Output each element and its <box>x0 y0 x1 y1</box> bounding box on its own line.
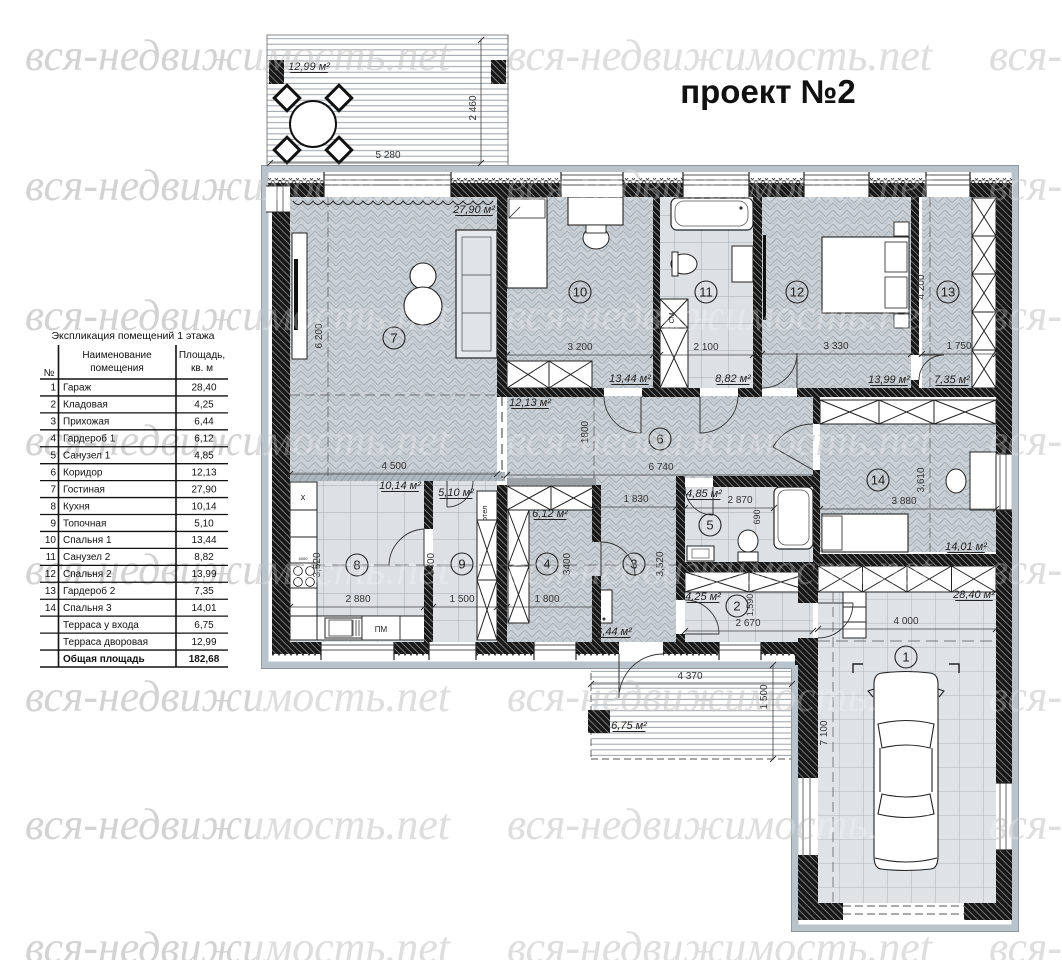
svg-text:Гардероб 2: Гардероб 2 <box>63 585 116 597</box>
svg-text:вся-недвижимость.net: вся-недвижимость.net <box>507 416 934 465</box>
svg-text:вся-недвижимость.net: вся-недвижимость.net <box>507 545 934 594</box>
svg-text:вся-недвижимость.net: вся-недвижимость.net <box>989 416 1062 465</box>
svg-text:вся-недвижимость.net: вся-недвижимость.net <box>989 800 1062 849</box>
svg-text:Площадь,: Площадь, <box>179 350 225 361</box>
svg-text:5,10 м²: 5,10 м² <box>438 487 474 499</box>
svg-text:8,82: 8,82 <box>194 552 214 563</box>
svg-text:вся-недвижимость.net: вся-недвижимость.net <box>507 800 934 849</box>
svg-text:3 880: 3 880 <box>891 496 916 507</box>
svg-text:6,75: 6,75 <box>194 620 214 631</box>
svg-text:вся-недвижимость.net: вся-недвижимость.net <box>989 672 1062 721</box>
svg-text:вся-недвижимость.net: вся-недвижимость.net <box>989 923 1062 960</box>
svg-text:Общая площадь: Общая площадь <box>63 653 145 665</box>
svg-text:14,01: 14,01 <box>191 603 216 614</box>
svg-text:5 280: 5 280 <box>375 150 400 161</box>
svg-text:x: x <box>301 492 306 502</box>
svg-text:12,13: 12,13 <box>191 467 216 478</box>
svg-text:7 100: 7 100 <box>819 720 830 745</box>
svg-text:8,82 м²: 8,82 м² <box>715 373 751 385</box>
svg-text:6: 6 <box>50 467 56 478</box>
svg-text:9: 9 <box>50 518 56 529</box>
svg-text:2 870: 2 870 <box>727 495 752 506</box>
svg-text:13: 13 <box>941 285 955 300</box>
svg-text:6,75 м²: 6,75 м² <box>611 720 647 732</box>
svg-text:№: № <box>44 368 55 379</box>
svg-text:13,99 м²: 13,99 м² <box>868 374 910 386</box>
svg-text:Экспликация помещений 1 этажа: Экспликация помещений 1 этажа <box>51 330 214 342</box>
svg-text:27,90 м²: 27,90 м² <box>452 204 495 216</box>
svg-text:кв. м: кв. м <box>191 363 213 374</box>
svg-text:вся-недвижимость.net: вся-недвижимость.net <box>989 31 1062 80</box>
svg-text:2 670: 2 670 <box>735 618 760 629</box>
svg-text:5,10: 5,10 <box>194 518 214 529</box>
svg-text:вся-недвижимость.net: вся-недвижимость.net <box>507 291 934 340</box>
svg-text:помещения: помещения <box>90 363 144 374</box>
svg-text:1 750: 1 750 <box>946 341 971 352</box>
svg-text:4 000: 4 000 <box>893 616 918 627</box>
svg-text:1 830: 1 830 <box>623 494 648 505</box>
svg-text:1 800: 1 800 <box>534 594 559 605</box>
svg-text:ПМ: ПМ <box>375 625 388 634</box>
svg-text:12,99: 12,99 <box>191 637 216 648</box>
svg-text:4,85: 4,85 <box>194 451 214 462</box>
svg-text:2: 2 <box>50 400 56 411</box>
svg-text:вся-недвижимость.net: вся-недвижимость.net <box>989 161 1062 210</box>
svg-text:Кладовая: Кладовая <box>63 400 108 411</box>
svg-text:1: 1 <box>50 383 56 394</box>
svg-text:вся-недвижимость.net: вся-недвижимость.net <box>507 672 934 721</box>
svg-text:7: 7 <box>50 484 56 495</box>
svg-text:6,44 м²: 6,44 м² <box>596 626 632 638</box>
svg-text:Санузел 2: Санузел 2 <box>63 552 111 563</box>
svg-text:1 500: 1 500 <box>449 594 474 605</box>
svg-text:вся-недвижимость.net: вся-недвижимость.net <box>507 161 934 210</box>
svg-text:Гараж: Гараж <box>63 383 92 394</box>
svg-text:28,40: 28,40 <box>191 383 216 394</box>
svg-text:Коридор: Коридор <box>63 467 103 478</box>
svg-text:14,01 м²: 14,01 м² <box>945 541 987 553</box>
svg-text:5: 5 <box>50 451 56 462</box>
svg-text:12,13 м²: 12,13 м² <box>509 397 551 409</box>
svg-text:Терраса дворовая: Терраса дворовая <box>63 637 148 648</box>
svg-text:6,44: 6,44 <box>194 417 214 428</box>
svg-text:4,85 м²: 4,85 м² <box>686 488 722 500</box>
svg-text:13: 13 <box>45 586 57 597</box>
svg-text:Наименование: Наименование <box>82 350 152 361</box>
svg-text:Спальня 1: Спальня 1 <box>63 535 112 546</box>
svg-text:27,90: 27,90 <box>191 484 216 495</box>
svg-text:Санузел 1: Санузел 1 <box>63 451 111 462</box>
svg-text:10: 10 <box>45 535 57 546</box>
svg-text:10,14 м²: 10,14 м² <box>379 480 421 492</box>
svg-text:6,12 м²: 6,12 м² <box>532 508 568 520</box>
svg-text:12: 12 <box>45 569 57 580</box>
svg-text:14: 14 <box>45 603 57 614</box>
svg-text:7,35: 7,35 <box>194 586 214 597</box>
svg-text:11: 11 <box>46 552 57 563</box>
svg-text:14: 14 <box>871 473 885 488</box>
svg-text:Спальня 3: Спальня 3 <box>63 603 112 614</box>
svg-text:вся-недвижимость.net: вся-недвижимость.net <box>507 923 934 960</box>
svg-text:10,14: 10,14 <box>191 501 216 512</box>
svg-text:Прихожая: Прихожая <box>63 417 109 428</box>
svg-text:Терраса у входа: Терраса у входа <box>63 620 139 631</box>
svg-text:4,25: 4,25 <box>194 400 214 411</box>
svg-text:8: 8 <box>50 501 56 512</box>
svg-text:13,44 м²: 13,44 м² <box>609 373 651 385</box>
svg-text:Кухня: Кухня <box>63 501 90 512</box>
svg-text:7,35 м²: 7,35 м² <box>934 374 970 386</box>
svg-text:вся-недвижимость.net: вся-недвижимость.net <box>989 545 1062 594</box>
svg-text:182,68: 182,68 <box>189 654 220 665</box>
svg-text:1,590: 1,590 <box>745 594 755 617</box>
svg-text:1: 1 <box>902 650 909 665</box>
svg-text:3,610: 3,610 <box>916 467 927 492</box>
svg-text:Гардероб 1: Гардероб 1 <box>63 433 116 445</box>
svg-text:вся-недвижимость.net: вся-недвижимость.net <box>989 291 1062 340</box>
svg-text:Спальня 2: Спальня 2 <box>63 569 112 580</box>
svg-text:2 460: 2 460 <box>468 95 479 120</box>
svg-text:2 100: 2 100 <box>693 342 718 353</box>
svg-text:6,12: 6,12 <box>194 434 214 445</box>
svg-text:2 880: 2 880 <box>345 594 370 605</box>
svg-text:690: 690 <box>752 509 762 524</box>
svg-text:Гостиная: Гостиная <box>63 484 105 495</box>
svg-text:вся-недвижимость.net: вся-недвижимость.net <box>507 31 934 80</box>
svg-text:5: 5 <box>706 518 713 533</box>
svg-text:3 330: 3 330 <box>823 341 848 352</box>
svg-text:Топочная: Топочная <box>63 518 106 529</box>
svg-text:9: 9 <box>458 557 465 572</box>
svg-text:2: 2 <box>733 599 740 614</box>
svg-text:3: 3 <box>50 417 56 428</box>
svg-text:13,44: 13,44 <box>191 535 216 546</box>
svg-text:13,99: 13,99 <box>191 569 216 580</box>
svg-text:4: 4 <box>50 434 56 445</box>
svg-text:3 200: 3 200 <box>567 342 592 353</box>
